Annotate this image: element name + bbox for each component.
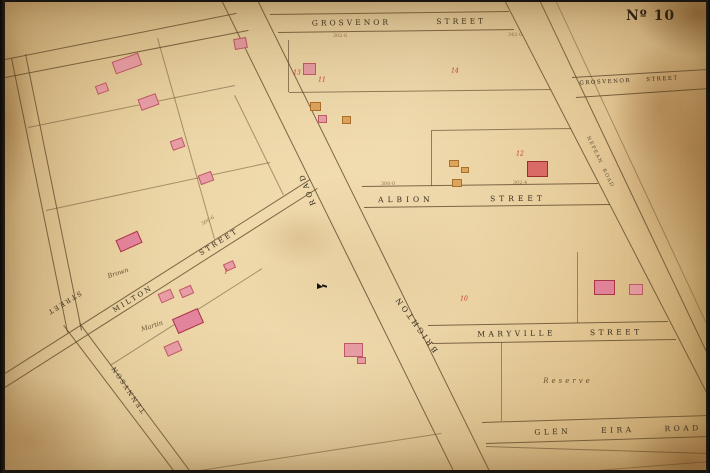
building [310, 102, 321, 111]
survey-line [362, 183, 598, 187]
building [527, 161, 548, 177]
street-label-albion-street: ALBION STREET [378, 194, 546, 204]
survey-line [482, 415, 710, 423]
building [170, 137, 186, 151]
survey-line [278, 29, 514, 33]
lot-number: 1 [224, 269, 228, 276]
owner-martin: Martin [140, 319, 164, 334]
map-frame-right [706, 0, 710, 473]
survey-mark [317, 283, 318, 284]
survey-line [486, 446, 708, 454]
street-label-maryville-street: MARYVILLE STREET [477, 327, 643, 338]
survey-line [0, 188, 318, 391]
dimension-label: 342·0 [508, 32, 522, 38]
building [344, 343, 363, 357]
building [115, 231, 142, 253]
survey-line [501, 342, 502, 421]
building [233, 37, 248, 50]
street-label-nepean-road: NEPEAN ROAD [585, 135, 615, 188]
building [163, 340, 182, 357]
lot-number: 14 [451, 68, 459, 75]
map-frame-top [0, 0, 710, 2]
survey-line [46, 162, 270, 211]
survey-line [28, 85, 235, 128]
building [172, 308, 204, 334]
survey-line [486, 436, 710, 444]
survey-line [428, 321, 668, 326]
building [629, 284, 643, 295]
survey-line [539, 0, 710, 359]
building [303, 63, 316, 75]
building [342, 116, 351, 124]
survey-line [0, 13, 236, 61]
survey-line [25, 54, 82, 330]
lot-number: 12 [516, 151, 524, 158]
survey-map-sheet: Nº 10 GROSVENOR STREETGROSVENOR STREETAL… [0, 0, 710, 473]
street-label-grosvenor-street-top: GROSVENOR STREET [312, 16, 486, 27]
owner-brown: Brown [107, 266, 130, 280]
street-label-tennyson-street: TENNYSON [109, 363, 147, 414]
building [452, 179, 462, 187]
street-label-glen-eira-road: GLEN EIRA ROAD [534, 423, 702, 436]
survey-line [577, 252, 578, 323]
survey-line [157, 38, 215, 239]
building [449, 160, 459, 167]
building [318, 115, 327, 123]
building [138, 93, 160, 111]
dimension-label: 302·6 [333, 33, 347, 39]
building [158, 289, 175, 304]
building [198, 171, 215, 185]
map-frame-left [0, 0, 5, 473]
survey-line [364, 204, 610, 208]
survey-line [270, 11, 509, 15]
street-label-milton-street-word-milton: MILTON [111, 284, 154, 314]
building [179, 285, 195, 299]
survey-line [289, 89, 551, 93]
survey-line [63, 325, 176, 473]
survey-line [432, 128, 571, 131]
building [594, 280, 615, 295]
survey-line [221, 0, 455, 473]
building [95, 82, 109, 95]
reserve-label: Reserve [543, 377, 593, 385]
building [461, 167, 469, 173]
dimension-label: 300·6 [200, 215, 215, 228]
survey-line [0, 30, 248, 79]
survey-line [11, 58, 68, 332]
building [357, 357, 366, 364]
lot-number: 13 [293, 70, 301, 77]
survey-line [200, 433, 441, 471]
survey-line [431, 130, 432, 186]
dimension-label: 300·0 [381, 181, 395, 187]
survey-line [555, 0, 710, 330]
lot-number: 10 [460, 296, 468, 303]
survey-line [432, 339, 676, 344]
street-label-grosvenor-street-right: GROSVENOR STREET [579, 75, 678, 86]
lot-number: 11 [318, 77, 326, 84]
survey-line [288, 40, 289, 92]
map-features: GROSVENOR STREETGROSVENOR STREETALBION S… [0, 0, 710, 473]
dimension-label: 302·4 [513, 180, 527, 186]
